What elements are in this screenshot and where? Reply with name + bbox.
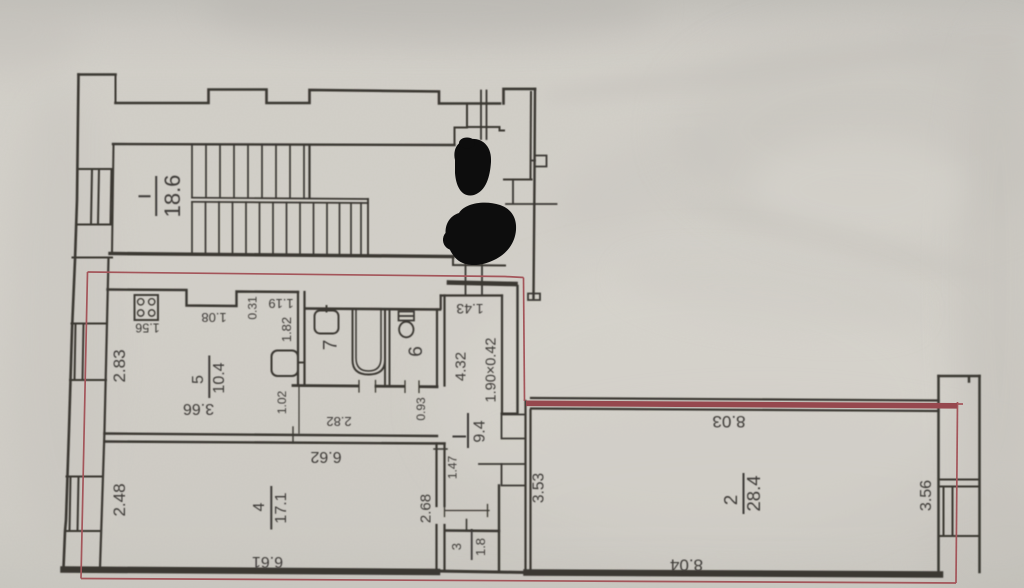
svg-text:2.48: 2.48: [110, 483, 129, 516]
svg-text:1.02: 1.02: [275, 390, 289, 414]
svg-text:1.47: 1.47: [446, 455, 460, 479]
svg-text:4: 4: [251, 502, 268, 511]
svg-text:1.8: 1.8: [473, 538, 488, 556]
svg-text:1.08: 1.08: [201, 310, 226, 325]
svg-text:7: 7: [321, 340, 342, 351]
svg-text:1.43: 1.43: [456, 301, 483, 317]
svg-text:0.93: 0.93: [414, 397, 428, 421]
svg-text:2.68: 2.68: [418, 494, 435, 523]
svg-text:2: 2: [720, 495, 741, 505]
svg-text:8.04: 8.04: [670, 556, 703, 575]
svg-text:2.82: 2.82: [326, 414, 351, 429]
svg-text:3.56: 3.56: [918, 480, 935, 511]
svg-text:28.4: 28.4: [743, 475, 764, 511]
svg-text:3: 3: [449, 543, 464, 550]
svg-text:17.1: 17.1: [273, 492, 290, 523]
svg-text:18.6: 18.6: [160, 175, 185, 218]
svg-text:9.4: 9.4: [472, 420, 489, 442]
svg-text:10.4: 10.4: [211, 362, 228, 393]
svg-text:1.82: 1.82: [279, 317, 294, 342]
svg-text:6: 6: [406, 346, 427, 357]
svg-text:6.61: 6.61: [252, 553, 283, 570]
svg-text:1.90×0.42: 1.90×0.42: [484, 338, 500, 403]
svg-text:1.56: 1.56: [135, 321, 159, 335]
svg-text:4.32: 4.32: [453, 352, 470, 381]
svg-text:3.66: 3.66: [183, 400, 214, 417]
svg-text:2.83: 2.83: [110, 349, 129, 382]
svg-text:1.19: 1.19: [268, 296, 293, 311]
svg-text:6.62: 6.62: [310, 448, 341, 465]
svg-text:5: 5: [190, 375, 207, 384]
svg-text:3.53: 3.53: [531, 473, 548, 503]
svg-text:0.31: 0.31: [246, 296, 260, 320]
svg-text:8.03: 8.03: [712, 412, 745, 431]
